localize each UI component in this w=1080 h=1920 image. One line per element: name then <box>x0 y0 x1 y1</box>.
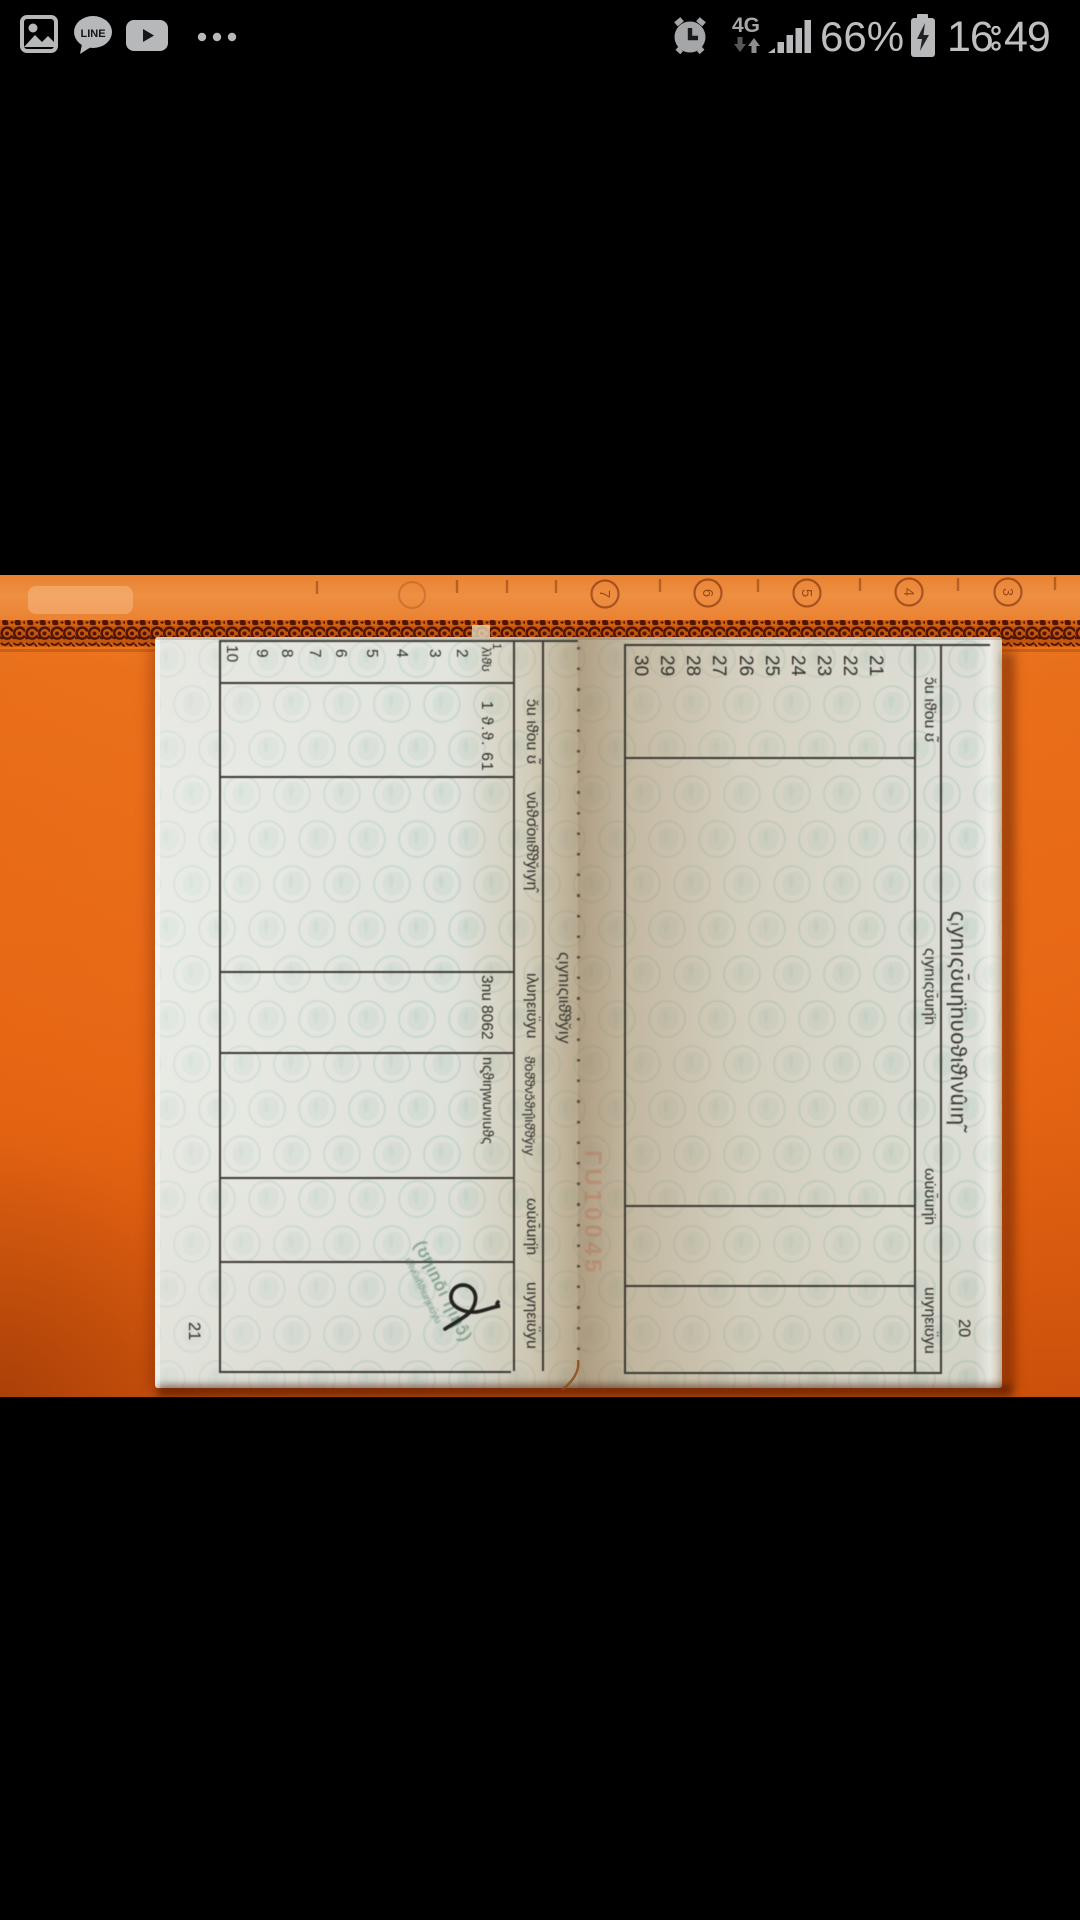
svg-text:7: 7 <box>596 590 613 598</box>
svg-text:LINE: LINE <box>80 28 105 40</box>
svg-text:6: 6 <box>699 589 716 597</box>
svg-text:3: 3 <box>999 588 1016 596</box>
svg-text:4: 4 <box>900 588 917 596</box>
svg-text:5: 5 <box>798 589 815 597</box>
